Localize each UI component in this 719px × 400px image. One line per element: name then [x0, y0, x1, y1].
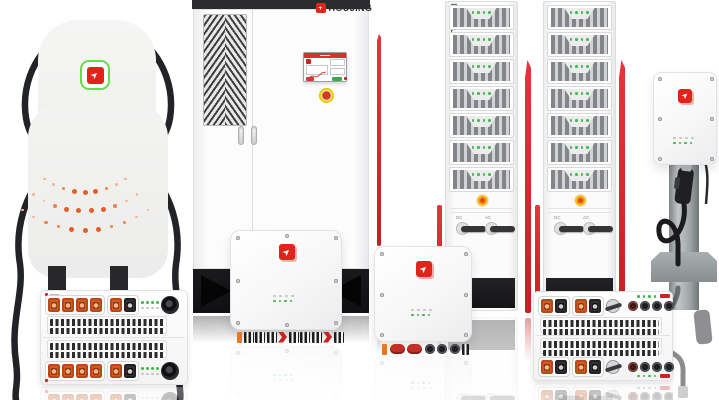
dc-breaker-switch[interactable]: DC — [456, 393, 469, 400]
signal-connector — [589, 360, 601, 374]
fan-knob — [161, 362, 179, 380]
door-handle-left[interactable] — [238, 126, 244, 145]
round-connector — [652, 362, 662, 372]
indicator-dot — [93, 189, 98, 194]
terminal-connector — [382, 344, 387, 355]
screw — [464, 252, 468, 256]
signal-connector — [555, 360, 567, 374]
status-led — [146, 301, 149, 309]
ac-breaker-switch[interactable]: AC — [485, 393, 498, 400]
status-led — [151, 367, 154, 375]
rack-power-module — [547, 140, 612, 165]
round-connector — [640, 362, 650, 372]
dc-breaker-switch[interactable]: DC — [456, 216, 469, 235]
dc-connector — [110, 298, 122, 312]
product-showcase: HOUJING — [0, 0, 719, 400]
rack-power-module — [547, 167, 612, 192]
screw — [236, 321, 240, 325]
vent-grille — [47, 340, 167, 358]
indicator-dot — [113, 204, 117, 208]
indicator-dot — [123, 221, 127, 225]
status-led — [151, 301, 154, 309]
screw — [285, 234, 289, 238]
screw — [334, 236, 338, 240]
indicator-dot — [52, 183, 55, 186]
module-divider — [536, 335, 670, 336]
striped-connector — [334, 332, 344, 343]
rack-power-module — [449, 86, 514, 111]
fan-knob — [161, 296, 179, 314]
indicator-dot — [125, 200, 128, 203]
screw — [334, 321, 338, 325]
brand-logo-icon — [316, 3, 326, 13]
cabinet-accent-stripe — [377, 34, 381, 246]
indicator-dot — [64, 207, 69, 212]
battery-rack-cabinet-2[interactable]: DC AC — [535, 0, 633, 316]
module-connector-row-bottom — [538, 358, 674, 376]
bottom-connector-strip — [237, 330, 344, 344]
hmi-screen[interactable] — [303, 52, 347, 82]
screw — [710, 117, 714, 121]
indicator-dot — [135, 216, 138, 219]
screw — [464, 293, 468, 297]
signal-connector — [555, 390, 567, 400]
screw — [380, 293, 384, 297]
dc-breaker-switch[interactable]: DC — [554, 393, 567, 400]
dc-connector — [575, 390, 587, 400]
rack-module-stack — [449, 5, 514, 194]
ac-breaker-switch[interactable]: AC — [485, 216, 498, 235]
rotary-knob[interactable] — [606, 390, 620, 400]
indicator-dot — [136, 193, 139, 196]
rack-power-module — [449, 167, 514, 192]
signal-connector — [555, 299, 567, 313]
dc-connector — [62, 298, 74, 312]
screen-panel — [330, 68, 345, 75]
dc-connector — [76, 364, 88, 378]
bottom-connector-strip — [382, 342, 469, 356]
indicator-dot — [43, 200, 46, 203]
screw — [334, 394, 338, 398]
striped-connector — [312, 332, 322, 343]
screw — [658, 117, 662, 121]
rack-module-stack — [547, 5, 612, 194]
status-led-grid — [411, 309, 432, 316]
signal-connector — [589, 299, 601, 313]
connector-pair — [572, 357, 604, 377]
power-module-stack-left[interactable] — [40, 290, 188, 385]
indicator-dot — [101, 207, 106, 212]
rack-power-module — [449, 113, 514, 138]
connector-pair — [572, 296, 604, 316]
dc-connector — [575, 360, 587, 374]
screen-dot — [344, 77, 347, 80]
dc-connector — [90, 298, 102, 312]
indicator-dot — [83, 190, 88, 195]
indicator-dot — [110, 225, 114, 229]
signal-connector — [589, 390, 601, 400]
round-connector — [664, 362, 674, 372]
rack-switch-panel: DC AC — [456, 216, 498, 235]
connector-pair — [572, 387, 604, 400]
dc-breaker-switch[interactable]: DC — [554, 216, 567, 235]
red-connector — [323, 332, 332, 343]
indicator-dot — [53, 204, 57, 208]
ac-connector-group — [107, 361, 139, 381]
module-connector-row-top — [538, 297, 674, 315]
screen-button-red — [306, 77, 314, 81]
indicator-dot — [72, 189, 77, 194]
screw — [380, 252, 384, 256]
status-led — [156, 301, 159, 309]
brand-logo-icon — [279, 244, 295, 260]
rack-power-module — [547, 86, 612, 111]
dc-connector — [575, 299, 587, 313]
striped-connector — [267, 332, 277, 343]
connector-pair — [538, 387, 570, 400]
screw — [236, 279, 240, 283]
screw — [236, 394, 240, 398]
status-led-grid — [673, 137, 694, 144]
dc-connector — [62, 364, 74, 378]
rack-accent-stripe-right — [525, 60, 531, 313]
red-connector — [278, 332, 287, 343]
connector-pair — [538, 357, 570, 377]
indicator-dot — [62, 187, 66, 191]
module-connector-row-bottom — [45, 361, 179, 381]
dc-connector — [541, 299, 553, 313]
rack-power-module — [547, 113, 612, 138]
indicator-dot — [69, 227, 74, 232]
status-led — [146, 367, 149, 375]
round-connector — [652, 301, 662, 311]
round-connector — [425, 344, 435, 354]
terminal-connector — [237, 332, 242, 343]
pedestal-arm — [651, 252, 717, 282]
status-led-grid — [273, 374, 294, 381]
base-chevron-left — [201, 275, 231, 307]
rack-stripe-reflection — [525, 318, 531, 388]
rack-switch-panel: DC AC — [554, 393, 596, 400]
ac-breaker-switch[interactable]: AC — [583, 216, 596, 235]
screw — [464, 333, 468, 337]
rack-body: DC AC — [543, 1, 616, 311]
pedestal-pole — [669, 160, 699, 310]
dc-connector — [90, 364, 102, 378]
rack-trim-panel — [548, 208, 611, 213]
screen-logo — [306, 59, 311, 64]
wall-inverter-large[interactable] — [230, 346, 342, 400]
brand-logo-icon — [416, 261, 432, 277]
rack-switch-panel: DC AC — [456, 393, 498, 400]
striped-connector — [255, 332, 265, 343]
screw — [658, 77, 662, 81]
status-led — [156, 367, 159, 375]
rack-power-module — [547, 32, 612, 57]
screw — [334, 352, 338, 356]
rack-emergency-stop[interactable] — [477, 195, 488, 206]
dc-connector — [541, 360, 553, 374]
rack-emergency-stop[interactable] — [575, 195, 586, 206]
status-led — [141, 367, 144, 375]
dc-connector — [48, 298, 60, 312]
dc-connector — [48, 364, 60, 378]
module-brand-mark — [45, 379, 48, 382]
rack-power-module — [547, 5, 612, 30]
screw — [710, 77, 714, 81]
indicator-dot — [43, 178, 46, 181]
indicator-dot — [32, 216, 35, 219]
indicator-dot — [21, 209, 24, 212]
screw — [710, 157, 714, 161]
rack-trim-panel — [450, 208, 513, 213]
striped-connector — [289, 332, 299, 343]
screw — [285, 350, 289, 354]
striped-connector — [300, 332, 310, 343]
ac-connector-group — [107, 295, 139, 315]
status-led-grid — [411, 382, 432, 389]
power-module-stack-right[interactable] — [533, 291, 673, 381]
indicator-dot — [44, 221, 48, 225]
module-connector-row-top — [45, 295, 179, 315]
screw — [380, 333, 384, 337]
ac-breaker-switch[interactable]: AC — [583, 393, 596, 400]
wall-inverter-large[interactable] — [230, 230, 342, 330]
dc-connector-group — [45, 361, 105, 381]
rack-power-module — [449, 59, 514, 84]
vent-grille — [540, 338, 662, 354]
screen-button-green — [332, 77, 342, 81]
indicator-dot — [105, 187, 109, 191]
round-connector — [664, 301, 674, 311]
wallbox-body — [653, 72, 717, 165]
round-connector — [437, 344, 447, 354]
screw — [380, 362, 384, 366]
base-chevron-left — [201, 322, 231, 354]
vent-grille — [47, 316, 167, 334]
rack-power-module — [449, 5, 514, 30]
module-brand-mark — [660, 374, 670, 378]
screen-panel — [330, 59, 345, 66]
status-led-row — [637, 375, 656, 378]
indicator-dot — [147, 209, 150, 212]
rotary-knob[interactable] — [606, 360, 620, 374]
screw — [236, 352, 240, 356]
door-handle-right[interactable] — [251, 126, 257, 145]
round-connector — [450, 344, 460, 354]
wall-inverter-small[interactable] — [374, 246, 472, 342]
red-power-connector — [407, 344, 422, 354]
screw — [464, 362, 468, 366]
indicator-dot — [32, 193, 35, 196]
emergency-stop-button[interactable] — [319, 88, 334, 103]
rack-accent-stripe-right — [619, 60, 625, 313]
rack-power-module — [449, 140, 514, 165]
module-divider — [43, 337, 185, 338]
brand-logo-text: HOUJING — [329, 3, 373, 13]
round-connector — [640, 301, 650, 311]
indicator-dot — [57, 225, 61, 229]
vent-grille — [540, 317, 662, 333]
indicator-dot — [96, 227, 101, 232]
striped-connector — [244, 332, 254, 343]
screen-chart — [306, 65, 328, 75]
dc-connector-group — [45, 295, 105, 315]
dc-connector — [541, 390, 553, 400]
red-power-connector — [390, 344, 405, 354]
dc-connector — [110, 364, 122, 378]
cabinet-brand-logo: HOUJING — [316, 3, 372, 13]
round-connector — [628, 392, 638, 400]
round-connector — [628, 362, 638, 372]
screw — [334, 279, 338, 283]
screen-header-dash — [320, 55, 330, 57]
rack-power-module — [547, 59, 612, 84]
indicator-dot — [76, 208, 81, 213]
dc-connector — [76, 298, 88, 312]
indicator-dot — [89, 208, 94, 213]
indicator-dot — [124, 178, 127, 181]
status-led-grid — [273, 295, 294, 302]
indicator-dot — [83, 228, 88, 233]
signal-connector — [124, 298, 136, 312]
rotary-knob[interactable] — [606, 299, 620, 313]
brand-logo-icon — [678, 89, 692, 103]
status-led — [141, 301, 144, 309]
screw — [285, 323, 289, 327]
indicator-dot — [115, 183, 118, 186]
vent-grille-chevron — [203, 14, 247, 126]
round-connector — [628, 301, 638, 311]
rack-power-module — [449, 32, 514, 57]
connector-pair — [538, 296, 570, 316]
signal-connector — [124, 364, 136, 378]
wall-inverter-small[interactable] — [374, 356, 472, 400]
rack-switch-panel: DC AC — [554, 216, 596, 235]
screw — [658, 157, 662, 161]
screw — [236, 236, 240, 240]
striped-connector — [462, 344, 469, 355]
